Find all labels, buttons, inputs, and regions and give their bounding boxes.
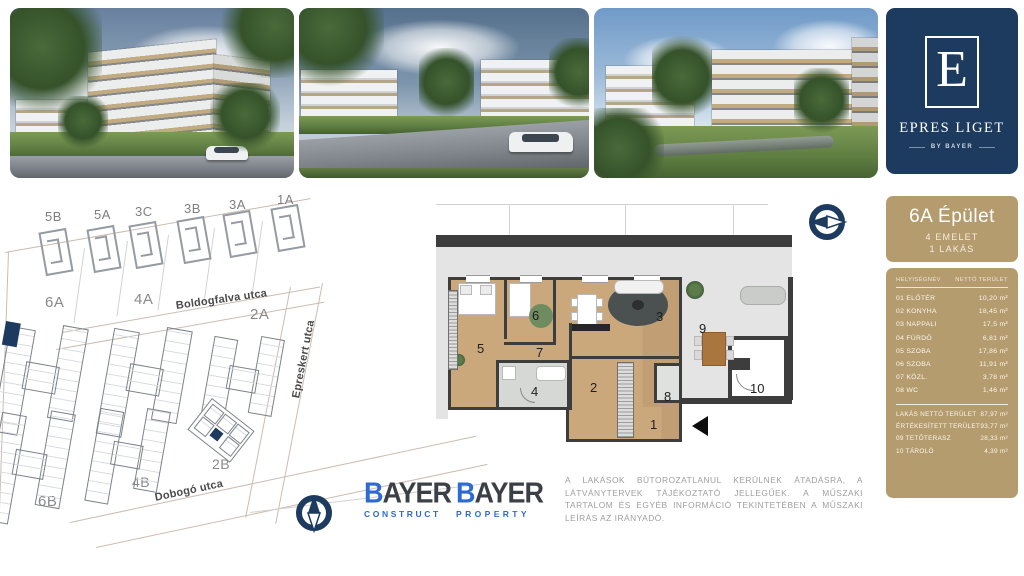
kitchen-counter	[572, 324, 610, 331]
washer	[502, 366, 516, 380]
bayer-initial: B	[364, 477, 383, 509]
building-floor: 4 EMELET	[886, 232, 1018, 242]
tree	[58, 96, 108, 151]
table-row: 04 FÜRDŐ6,81 m²	[896, 332, 1008, 345]
room-number-1: 1	[650, 417, 657, 432]
room-name: 03 NAPPALI	[896, 321, 937, 328]
building-outline-5b	[38, 228, 73, 276]
compass-icon-horizontal	[803, 203, 851, 241]
parcel-divider	[73, 248, 85, 323]
sofa	[614, 280, 664, 294]
upper-terrace-slab	[436, 247, 792, 277]
compass-icon-vertical	[295, 489, 333, 537]
bayer-initial: B	[456, 477, 475, 509]
building-label-3b: 3B	[184, 201, 201, 216]
building-outline-3a	[222, 210, 257, 258]
window	[582, 275, 608, 283]
rendering-photo-1	[10, 8, 294, 178]
block-label-2a: 2A	[250, 306, 269, 323]
col-room-name: HELYISÉGNÉV	[896, 277, 941, 283]
bayer-division: CONSTRUCT	[364, 509, 451, 519]
wall	[504, 342, 556, 345]
room-name: 06 SZOBA	[896, 361, 931, 368]
table-row: 08 WC1,46 m²	[896, 384, 1008, 397]
bayer-wordmark: BAYER	[364, 480, 451, 507]
chair	[726, 336, 734, 346]
room-area: 3,78 m²	[983, 374, 1008, 381]
col-net-area: NETTÓ TERÜLET	[955, 277, 1008, 283]
room-area: 11,91 m²	[979, 361, 1008, 368]
building-outline-1a	[270, 204, 305, 252]
room-number-5: 5	[477, 341, 484, 356]
tree	[794, 68, 849, 138]
brand-name: EPRES LIGET	[899, 120, 1005, 137]
tree	[419, 48, 474, 123]
brochure-page: E EPRES LIGET BY BAYER 6A Épület 4 EMELE…	[0, 0, 1024, 576]
table-row: 03 NAPPALI17,5 m²	[896, 318, 1008, 331]
room-name: 08 WC	[896, 387, 918, 394]
summary-name: 09 TETŐTERASZ	[896, 435, 951, 442]
tree	[220, 8, 294, 78]
summary-name: LAKÁS NETTÓ TERÜLET	[896, 411, 977, 418]
area-table-card: HELYISÉGNÉV NETTÓ TERÜLET 01 ELŐTÉR10,20…	[886, 268, 1018, 498]
block-label-4a: 4A	[134, 291, 153, 308]
chair	[571, 298, 578, 307]
building-label-3c: 3C	[135, 204, 153, 219]
dining-table	[577, 294, 597, 328]
chair	[726, 350, 734, 360]
building-outline-3c	[128, 221, 163, 269]
rendering-photo-2	[299, 8, 589, 178]
wall	[553, 277, 556, 345]
room-area: 6,81 m²	[983, 335, 1008, 342]
building-title: 6A Épület	[886, 206, 1018, 228]
room-name: 07 KÖZL.	[896, 374, 928, 381]
tree	[549, 38, 589, 113]
summary-name: 10 TÁROLÓ	[896, 448, 934, 455]
summary-area: 4,39 m²	[984, 448, 1008, 455]
chair	[571, 312, 578, 321]
room-number-10: 10	[750, 381, 764, 396]
room-name: 02 KONYHA	[896, 308, 937, 315]
summary-area: 93,77 m²	[980, 423, 1008, 430]
brand-byline: BY BAYER	[909, 144, 995, 150]
window	[520, 275, 542, 283]
bed	[509, 283, 531, 317]
room-area: 17,5 m²	[983, 321, 1008, 328]
room-number-7: 7	[536, 345, 543, 360]
room-area: 17,86 m²	[979, 348, 1008, 355]
room-name: 05 SZOBA	[896, 348, 931, 355]
pillow	[460, 285, 472, 295]
dimension-line	[436, 204, 768, 205]
hatched-strip	[448, 290, 458, 370]
tree	[594, 108, 664, 178]
brand-monogram-frame: E	[925, 36, 979, 108]
bathtub	[536, 366, 566, 381]
tree	[299, 8, 384, 88]
building-label-5a: 5A	[94, 207, 111, 222]
right-building	[852, 38, 878, 134]
room-number-3: 3	[656, 309, 663, 324]
bayer-wordmark: BAYER	[456, 480, 543, 507]
rendering-photo-3	[594, 8, 878, 178]
summary-area: 87,97 m²	[980, 411, 1008, 418]
bayer-rest: AYER	[475, 477, 544, 509]
pillow	[480, 285, 492, 295]
room-area: 10,20 m²	[979, 295, 1008, 302]
building-label-3a: 3A	[229, 197, 246, 212]
coffee-table	[632, 300, 644, 310]
street-label-epreskert: Epreskert utca	[290, 319, 317, 399]
chair	[694, 350, 702, 360]
brand-logo-card: E EPRES LIGET BY BAYER	[886, 8, 1018, 174]
area-table-header: HELYISÉGNÉV NETTÓ TERÜLET	[896, 277, 1008, 288]
room-number-9: 9	[699, 321, 706, 336]
outdoor-table	[702, 332, 726, 366]
summary-row: 09 TETŐTERASZ28,33 m²	[896, 433, 1008, 445]
summary-row: ÉRTÉKESÍTETT TERÜLET93,77 m²	[896, 421, 1008, 433]
north-facade-wall	[436, 235, 792, 247]
room-area: 18,45 m²	[979, 308, 1008, 315]
wall	[504, 277, 507, 339]
summary-row: 10 TÁROLÓ4,39 m²	[896, 445, 1008, 457]
block-label-6a: 6A	[45, 294, 64, 311]
building-complex-6b	[0, 402, 87, 545]
disclaimer-text: A LAKÁSOK BÚTOROZATLANUL KERÜLNEK ÁTADÁS…	[565, 474, 863, 524]
side-slab	[436, 277, 448, 419]
table-divider	[896, 404, 1008, 405]
outdoor-sofa	[740, 286, 786, 305]
entry-arrow-icon	[692, 416, 708, 436]
room-name: 01 ELŐTÉR	[896, 295, 935, 302]
brand-initial: E	[936, 44, 968, 96]
summary-area: 28,33 m²	[980, 435, 1008, 442]
room-area: 1,46 m²	[983, 387, 1008, 394]
chair	[596, 298, 603, 307]
table-row: 01 ELŐTÉR10,20 m²	[896, 292, 1008, 305]
table-row: 06 SZOBA11,91 m²	[896, 358, 1008, 371]
chair	[596, 312, 603, 321]
logo-bayer-property: BAYER PROPERTY	[456, 481, 543, 519]
floor-plan: 1 2 3 4 5 6 7 8 9 10	[436, 228, 792, 452]
table-row: 02 KONYHA18,45 m²	[896, 305, 1008, 318]
stair-shaft	[617, 362, 634, 438]
chair	[694, 336, 702, 346]
room-number-4: 4	[531, 384, 538, 399]
wall	[572, 356, 682, 359]
room-number-2: 2	[590, 380, 597, 395]
table-row: 05 SZOBA17,86 m²	[896, 345, 1008, 358]
bayer-division: PROPERTY	[456, 509, 543, 519]
building-outline-3b	[176, 216, 211, 264]
car	[509, 132, 573, 152]
tree	[210, 83, 280, 153]
unit-title-card: 6A Épület 4 EMELET 1 LAKÁS	[886, 196, 1018, 262]
room-name: 04 FÜRDŐ	[896, 335, 932, 342]
summary-row: LAKÁS NETTÓ TERÜLET87,97 m²	[896, 409, 1008, 421]
plant	[686, 281, 704, 299]
window	[466, 275, 490, 283]
bayer-rest: AYER	[383, 477, 452, 509]
building-units: 1 LAKÁS	[886, 244, 1018, 254]
building-label-5b: 5B	[45, 209, 62, 224]
logo-bayer-construct: BAYER CONSTRUCT	[364, 481, 451, 519]
room-number-8: 8	[664, 389, 671, 404]
summary-name: ÉRTÉKESÍTETT TERÜLET	[896, 423, 980, 430]
room-number-6: 6	[532, 308, 539, 323]
table-row: 07 KÖZL.3,78 m²	[896, 371, 1008, 384]
